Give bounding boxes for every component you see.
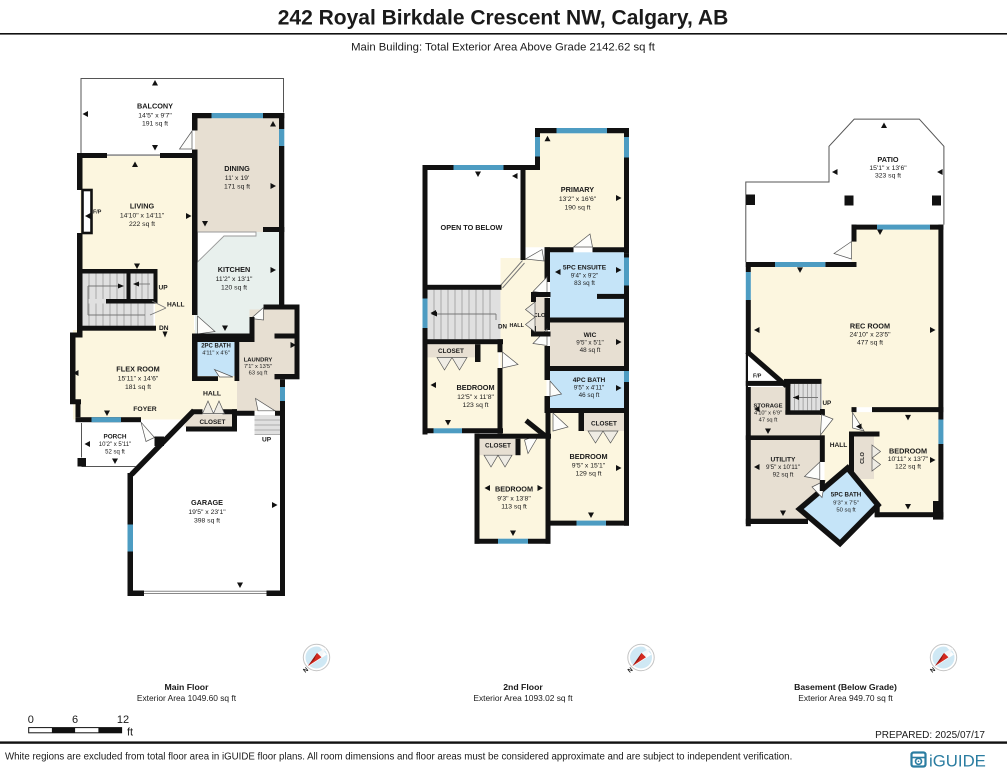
svg-text:477 sq ft: 477 sq ft bbox=[857, 340, 883, 347]
svg-text:242 Royal Birkdale Crescent NW: 242 Royal Birkdale Crescent NW, Calgary,… bbox=[278, 7, 729, 30]
svg-text:9'5" x 5'1": 9'5" x 5'1" bbox=[576, 340, 604, 347]
svg-text:14'5" x 9'7": 14'5" x 9'7" bbox=[138, 113, 172, 120]
svg-text:CLOSET: CLOSET bbox=[591, 421, 617, 428]
svg-text:15'11" x 14'6": 15'11" x 14'6" bbox=[118, 376, 159, 383]
svg-text:UP: UP bbox=[159, 285, 169, 292]
svg-text:9'5" x 15'1": 9'5" x 15'1" bbox=[572, 463, 606, 470]
svg-text:113 sq ft: 113 sq ft bbox=[501, 504, 527, 511]
svg-text:PREPARED: 2025/07/17: PREPARED: 2025/07/17 bbox=[875, 730, 985, 741]
svg-text:CLOSET: CLOSET bbox=[485, 443, 511, 450]
svg-text:9'4" x 9'2": 9'4" x 9'2" bbox=[571, 273, 599, 280]
svg-text:Basement (Below Grade): Basement (Below Grade) bbox=[794, 682, 897, 692]
svg-text:CLOSET: CLOSET bbox=[200, 419, 226, 426]
svg-text:9'5" x 10'11": 9'5" x 10'11" bbox=[766, 464, 800, 471]
svg-text:83 sq ft: 83 sq ft bbox=[574, 280, 595, 287]
svg-text:ft: ft bbox=[127, 727, 133, 739]
svg-text:BEDROOM: BEDROOM bbox=[456, 383, 494, 392]
svg-text:398 sq ft: 398 sq ft bbox=[194, 518, 220, 525]
svg-text:2nd Floor: 2nd Floor bbox=[503, 682, 543, 692]
svg-text:FOYER: FOYER bbox=[133, 406, 157, 413]
svg-text:BEDROOM: BEDROOM bbox=[569, 452, 607, 461]
svg-text:14'10" x 14'11": 14'10" x 14'11" bbox=[120, 213, 165, 220]
svg-text:F/P: F/P bbox=[93, 210, 102, 216]
svg-text:129 sq ft: 129 sq ft bbox=[575, 471, 601, 478]
svg-text:DINING: DINING bbox=[224, 164, 250, 173]
svg-text:92 sq ft: 92 sq ft bbox=[773, 472, 794, 479]
svg-text:10'11" x 13'7": 10'11" x 13'7" bbox=[888, 456, 929, 463]
svg-text:OPEN TO BELOW: OPEN TO BELOW bbox=[441, 223, 503, 232]
svg-text:11'2" x 13'1": 11'2" x 13'1" bbox=[216, 276, 253, 283]
svg-text:DN: DN bbox=[159, 325, 169, 332]
svg-text:171 sq ft: 171 sq ft bbox=[224, 184, 250, 191]
svg-text:KITCHEN: KITCHEN bbox=[218, 265, 250, 274]
svg-text:2PC BATH: 2PC BATH bbox=[201, 344, 231, 350]
svg-text:Main Floor: Main Floor bbox=[165, 682, 210, 692]
svg-text:White regions are excluded fro: White regions are excluded from total fl… bbox=[5, 752, 792, 763]
svg-text:GARAGE: GARAGE bbox=[191, 498, 223, 507]
svg-text:HALL: HALL bbox=[167, 302, 185, 309]
svg-text:50 sq ft: 50 sq ft bbox=[836, 508, 856, 514]
svg-text:9'3" x 13'8": 9'3" x 13'8" bbox=[497, 496, 531, 503]
svg-text:6: 6 bbox=[72, 714, 78, 726]
svg-text:190 sq ft: 190 sq ft bbox=[564, 205, 590, 212]
svg-text:HALL: HALL bbox=[830, 442, 848, 449]
svg-text:Main Building: Total Exterior: Main Building: Total Exterior Area Above… bbox=[351, 42, 656, 54]
svg-text:12: 12 bbox=[117, 714, 129, 726]
svg-text:CLO: CLO bbox=[860, 451, 866, 463]
svg-text:15'1" x 13'6": 15'1" x 13'6" bbox=[869, 165, 907, 172]
svg-text:BEDROOM: BEDROOM bbox=[889, 447, 927, 456]
svg-text:5PC BATH: 5PC BATH bbox=[831, 492, 862, 499]
svg-text:HALL: HALL bbox=[203, 391, 221, 398]
svg-text:9'3" x 7'5": 9'3" x 7'5" bbox=[833, 501, 859, 507]
svg-text:63 sq ft: 63 sq ft bbox=[249, 371, 268, 377]
svg-text:120 sq ft: 120 sq ft bbox=[221, 285, 247, 292]
svg-text:iGUIDE: iGUIDE bbox=[929, 752, 986, 768]
svg-text:CLO: CLO bbox=[534, 313, 546, 319]
svg-text:FLEX ROOM: FLEX ROOM bbox=[116, 365, 159, 374]
svg-text:24'10" x 23'5": 24'10" x 23'5" bbox=[849, 332, 891, 339]
svg-text:LAUNDRY: LAUNDRY bbox=[244, 358, 273, 364]
svg-text:UTILITY: UTILITY bbox=[771, 457, 797, 464]
svg-text:REC ROOM: REC ROOM bbox=[850, 322, 890, 331]
svg-text:47 sq ft: 47 sq ft bbox=[759, 418, 778, 424]
svg-text:12'5" x 11'8": 12'5" x 11'8" bbox=[457, 394, 494, 401]
svg-text:191 sq ft: 191 sq ft bbox=[142, 121, 168, 128]
svg-text:48 sq ft: 48 sq ft bbox=[580, 347, 601, 354]
svg-text:5PC ENSUITE: 5PC ENSUITE bbox=[563, 265, 607, 272]
svg-text:BALCONY: BALCONY bbox=[137, 102, 173, 111]
svg-text:46 sq ft: 46 sq ft bbox=[579, 392, 600, 399]
svg-text:PATIO: PATIO bbox=[877, 155, 899, 164]
svg-text:Exterior Area 949.70 sq ft: Exterior Area 949.70 sq ft bbox=[798, 693, 893, 703]
svg-text:222 sq ft: 222 sq ft bbox=[129, 221, 155, 228]
svg-text:323 sq ft: 323 sq ft bbox=[875, 173, 901, 180]
svg-text:10'2" x 5'11": 10'2" x 5'11" bbox=[99, 442, 131, 448]
svg-text:11' x 19': 11' x 19' bbox=[225, 175, 249, 182]
svg-text:0: 0 bbox=[28, 714, 34, 726]
svg-text:WIC: WIC bbox=[584, 332, 597, 339]
svg-text:UP: UP bbox=[823, 400, 832, 407]
svg-text:PRIMARY: PRIMARY bbox=[561, 185, 595, 194]
svg-text:4'10" x 6'9": 4'10" x 6'9" bbox=[754, 411, 782, 417]
svg-text:LIVING: LIVING bbox=[130, 202, 155, 211]
svg-text:PORCH: PORCH bbox=[103, 434, 126, 441]
svg-text:9'5" x 4'11": 9'5" x 4'11" bbox=[574, 385, 605, 392]
svg-text:122 sq ft: 122 sq ft bbox=[895, 464, 921, 471]
svg-text:123 sq ft: 123 sq ft bbox=[462, 402, 488, 409]
svg-text:19'5" x 23'1": 19'5" x 23'1" bbox=[188, 509, 226, 516]
svg-text:UP: UP bbox=[262, 437, 272, 444]
svg-text:HALL: HALL bbox=[510, 323, 525, 329]
svg-text:BEDROOM: BEDROOM bbox=[495, 485, 533, 494]
svg-text:Exterior Area 1049.60 sq ft: Exterior Area 1049.60 sq ft bbox=[137, 693, 237, 703]
svg-text:CLOSET: CLOSET bbox=[438, 348, 464, 355]
svg-text:F/P: F/P bbox=[753, 374, 762, 380]
svg-text:DN: DN bbox=[498, 324, 507, 331]
svg-text:Exterior Area 1093.02 sq ft: Exterior Area 1093.02 sq ft bbox=[473, 693, 573, 703]
svg-text:7'1" x 13'5": 7'1" x 13'5" bbox=[244, 364, 272, 370]
svg-text:13'2" x 16'6": 13'2" x 16'6" bbox=[559, 196, 597, 203]
svg-text:4PC BATH: 4PC BATH bbox=[573, 377, 606, 384]
svg-text:52 sq ft: 52 sq ft bbox=[105, 450, 125, 456]
svg-text:181 sq ft: 181 sq ft bbox=[125, 384, 151, 391]
svg-text:4'11" x 4'6": 4'11" x 4'6" bbox=[202, 351, 230, 357]
